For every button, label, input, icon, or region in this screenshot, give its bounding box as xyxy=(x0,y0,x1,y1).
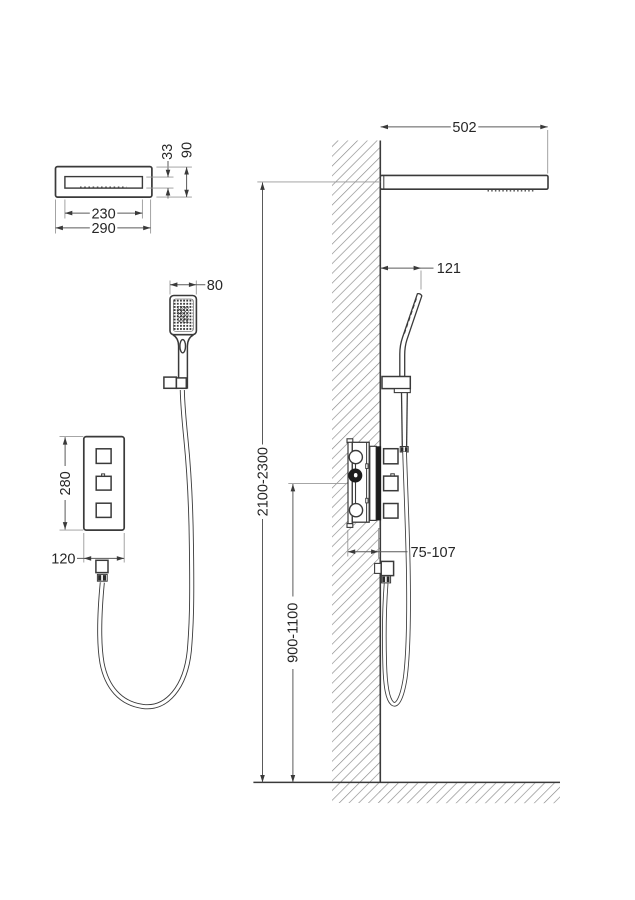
svg-text:230: 230 xyxy=(91,206,115,222)
svg-text:121: 121 xyxy=(437,261,461,277)
svg-text:90: 90 xyxy=(179,142,195,158)
svg-text:33: 33 xyxy=(160,144,176,160)
svg-text:502: 502 xyxy=(452,120,476,136)
svg-text:290: 290 xyxy=(91,221,115,237)
svg-text:75-107: 75-107 xyxy=(411,545,456,561)
svg-text:2100-2300: 2100-2300 xyxy=(255,447,271,516)
svg-text:120: 120 xyxy=(51,552,75,568)
svg-text:900-1100: 900-1100 xyxy=(286,603,302,663)
svg-text:80: 80 xyxy=(207,278,223,294)
svg-text:280: 280 xyxy=(58,471,74,495)
